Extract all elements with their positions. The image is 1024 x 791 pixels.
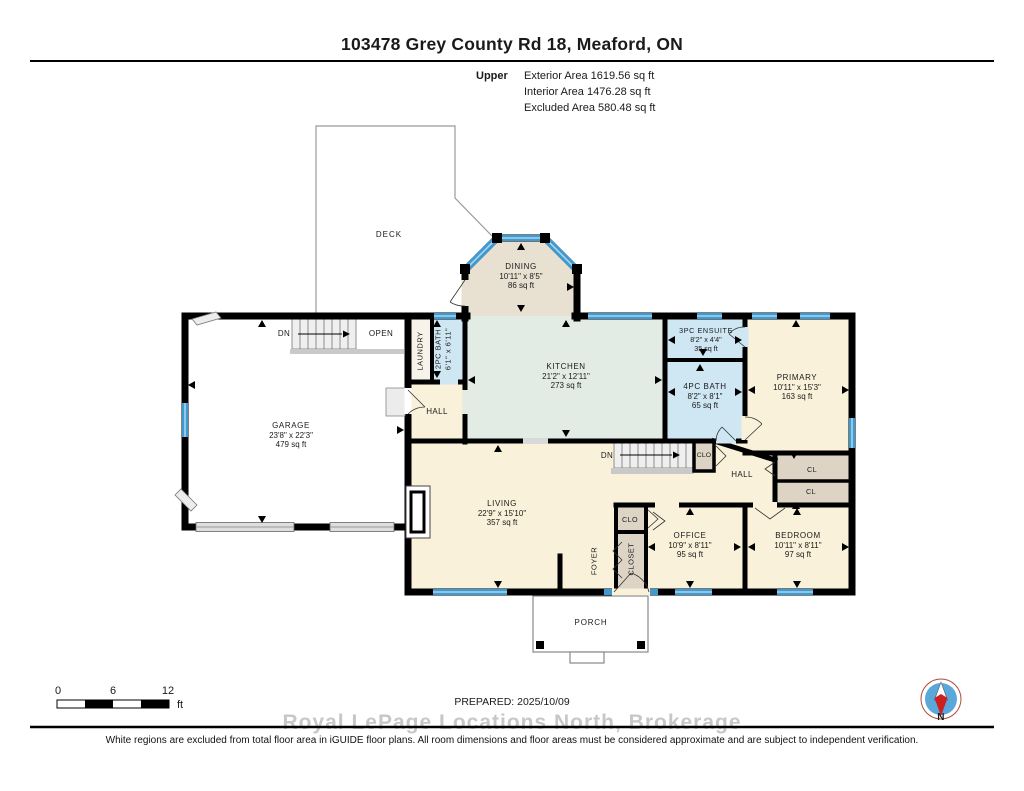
room-dims: 6'1" x 6'11": [443, 328, 453, 370]
room-name: LIVING: [478, 499, 526, 509]
room-dims: 8'2" x 4'4": [679, 335, 733, 344]
open-label: OPEN: [369, 329, 393, 338]
floorplan-page: Royal LePage Locations North, Brokerage: [0, 0, 1024, 791]
ensuite-label: 3PC ENSUITE 8'2" x 4'4" 35 sq ft: [679, 326, 733, 353]
room-dims: 10'11" x 8'11": [774, 541, 821, 551]
cl-b-label: CL: [806, 487, 816, 496]
room-area: 65 sq ft: [683, 401, 726, 411]
living-label: LIVING 22'9" x 15'10" 357 sq ft: [478, 499, 526, 528]
room-area: 163 sq ft: [773, 392, 821, 402]
room-name: BEDROOM: [774, 531, 821, 541]
room-area: 97 sq ft: [774, 550, 821, 560]
cl-a-label: CL: [807, 465, 817, 474]
hall-bedroom-label: HALL: [731, 470, 753, 479]
room-name: OFFICE: [668, 531, 711, 541]
disclaimer-text: White regions are excluded from total fl…: [0, 735, 1024, 746]
deck-label: DECK: [376, 230, 402, 239]
bath2pc-label: 2PC BATH 6'1" x 6'11": [434, 328, 453, 370]
room-area: 273 sq ft: [542, 381, 590, 391]
room-dims: 21'2" x 12'11": [542, 372, 590, 382]
exterior-area: Exterior Area 1619.56 sq ft: [524, 70, 654, 82]
dn-upper-label: DN: [278, 329, 290, 338]
room-area: 86 sq ft: [499, 281, 542, 291]
foyer-label: FOYER: [589, 547, 599, 575]
room-name: 3PC ENSUITE: [679, 326, 733, 335]
room-name: 2PC BATH: [434, 328, 444, 370]
hall-main-label: HALL: [426, 407, 448, 416]
excluded-area: Excluded Area 580.48 sq ft: [524, 102, 655, 114]
labels-layer: 103478 Grey County Rd 18, Meaford, ON Up…: [0, 0, 1024, 791]
page-title: 103478 Grey County Rd 18, Meaford, ON: [0, 34, 1024, 55]
dn-main-label: DN: [601, 451, 613, 460]
room-name: 4PC BATH: [683, 382, 726, 392]
room-dims: 23'8" x 22'3": [269, 431, 313, 441]
room-dims: 10'11" x 8'5": [499, 272, 542, 282]
dining-label: DINING 10'11" x 8'5" 86 sq ft: [499, 262, 542, 291]
porch-label: PORCH: [575, 618, 608, 627]
clo-foyer-label: CLO: [622, 515, 638, 524]
room-name: DINING: [499, 262, 542, 272]
compass-north-label: N: [937, 712, 945, 723]
closet-label: CLOSET: [626, 542, 636, 575]
room-name: GARAGE: [269, 421, 313, 431]
room-dims: 8'2" x 8'1": [683, 392, 726, 402]
kitchen-label: KITCHEN 21'2" x 12'11" 273 sq ft: [542, 362, 590, 391]
prepared-date: PREPARED: 2025/10/09: [0, 696, 1024, 708]
clo-hall-label: CLO: [697, 452, 712, 459]
floor-label: Upper: [476, 70, 508, 82]
bedroom-label: BEDROOM 10'11" x 8'11" 97 sq ft: [774, 531, 821, 560]
room-dims: 10'11" x 15'3": [773, 383, 821, 393]
bath4pc-label: 4PC BATH 8'2" x 8'1" 65 sq ft: [683, 382, 726, 411]
room-area: 35 sq ft: [679, 344, 733, 353]
room-dims: 10'9" x 8'11": [668, 541, 711, 551]
room-area: 95 sq ft: [668, 550, 711, 560]
room-area: 479 sq ft: [269, 440, 313, 450]
garage-label: GARAGE 23'8" x 22'3" 479 sq ft: [269, 421, 313, 450]
room-name: PRIMARY: [773, 373, 821, 383]
room-dims: 22'9" x 15'10": [478, 509, 526, 519]
office-label: OFFICE 10'9" x 8'11" 95 sq ft: [668, 531, 711, 560]
primary-label: PRIMARY 10'11" x 15'3" 163 sq ft: [773, 373, 821, 402]
room-area: 357 sq ft: [478, 518, 526, 528]
room-name: KITCHEN: [542, 362, 590, 372]
laundry-label: LAUNDRY: [415, 331, 425, 370]
interior-area: Interior Area 1476.28 sq ft: [524, 86, 651, 98]
